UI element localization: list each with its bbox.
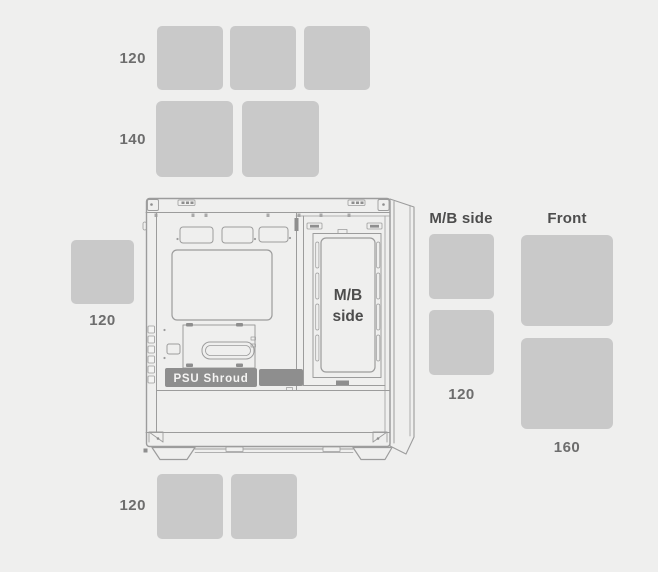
fan-slot-front-160-2 [521, 338, 613, 429]
mb-side-column-title: M/B side [427, 210, 495, 227]
mb-side-cage-label-line2: side [332, 308, 363, 325]
case-foot-left [152, 448, 195, 460]
gpu-support-bar [259, 369, 303, 386]
fan-slot-top-120-2 [230, 26, 296, 90]
fan-slot-top-120-3 [304, 26, 370, 90]
fan-slot-top-140-1 [156, 101, 233, 177]
fan-size-label-rear-120: 120 [71, 312, 134, 329]
psu-mount [183, 325, 255, 368]
fan-slot-mb-side-120-2 [429, 310, 494, 375]
fan-size-label-top-120: 120 [78, 50, 146, 67]
cpu-cutout [172, 250, 272, 320]
fan-size-label-bottom-120: 120 [78, 497, 146, 514]
psu-shroud-label: PSU Shroud [173, 373, 248, 385]
fan-slot-top-120-1 [157, 26, 223, 90]
case-foot-right [353, 448, 392, 460]
pc-case-diagram: M/B side PSU Shroud [140, 192, 425, 464]
fan-size-label-front-160: 160 [521, 439, 613, 456]
fan-size-label-top-140: 140 [78, 131, 146, 148]
mb-side-cage-label-line1: M/B [334, 287, 362, 304]
corner-tab-top-left [148, 200, 159, 211]
fan-slot-front-160-1 [521, 235, 613, 326]
io-cutout [167, 344, 180, 354]
cable-channel [295, 218, 299, 231]
fan-layout-diagram: 120 140 120 M/B side 120 Front 160 120 [0, 0, 658, 572]
fan-slot-bottom-120-2 [231, 474, 297, 539]
cable-cutout-1 [180, 227, 213, 243]
fan-slot-mb-side-120-1 [429, 234, 494, 299]
cable-cutout-2 [222, 227, 253, 243]
fan-slot-rear-120 [71, 240, 134, 304]
front-fan-cage [313, 234, 381, 378]
front-column-title: Front [521, 210, 613, 227]
cable-cutout-3 [259, 227, 288, 242]
fan-slot-top-140-2 [242, 101, 319, 177]
fan-slot-bottom-120-1 [157, 474, 223, 539]
psu-vent-slot [202, 342, 254, 359]
fan-size-label-mb-side-120: 120 [429, 386, 494, 403]
